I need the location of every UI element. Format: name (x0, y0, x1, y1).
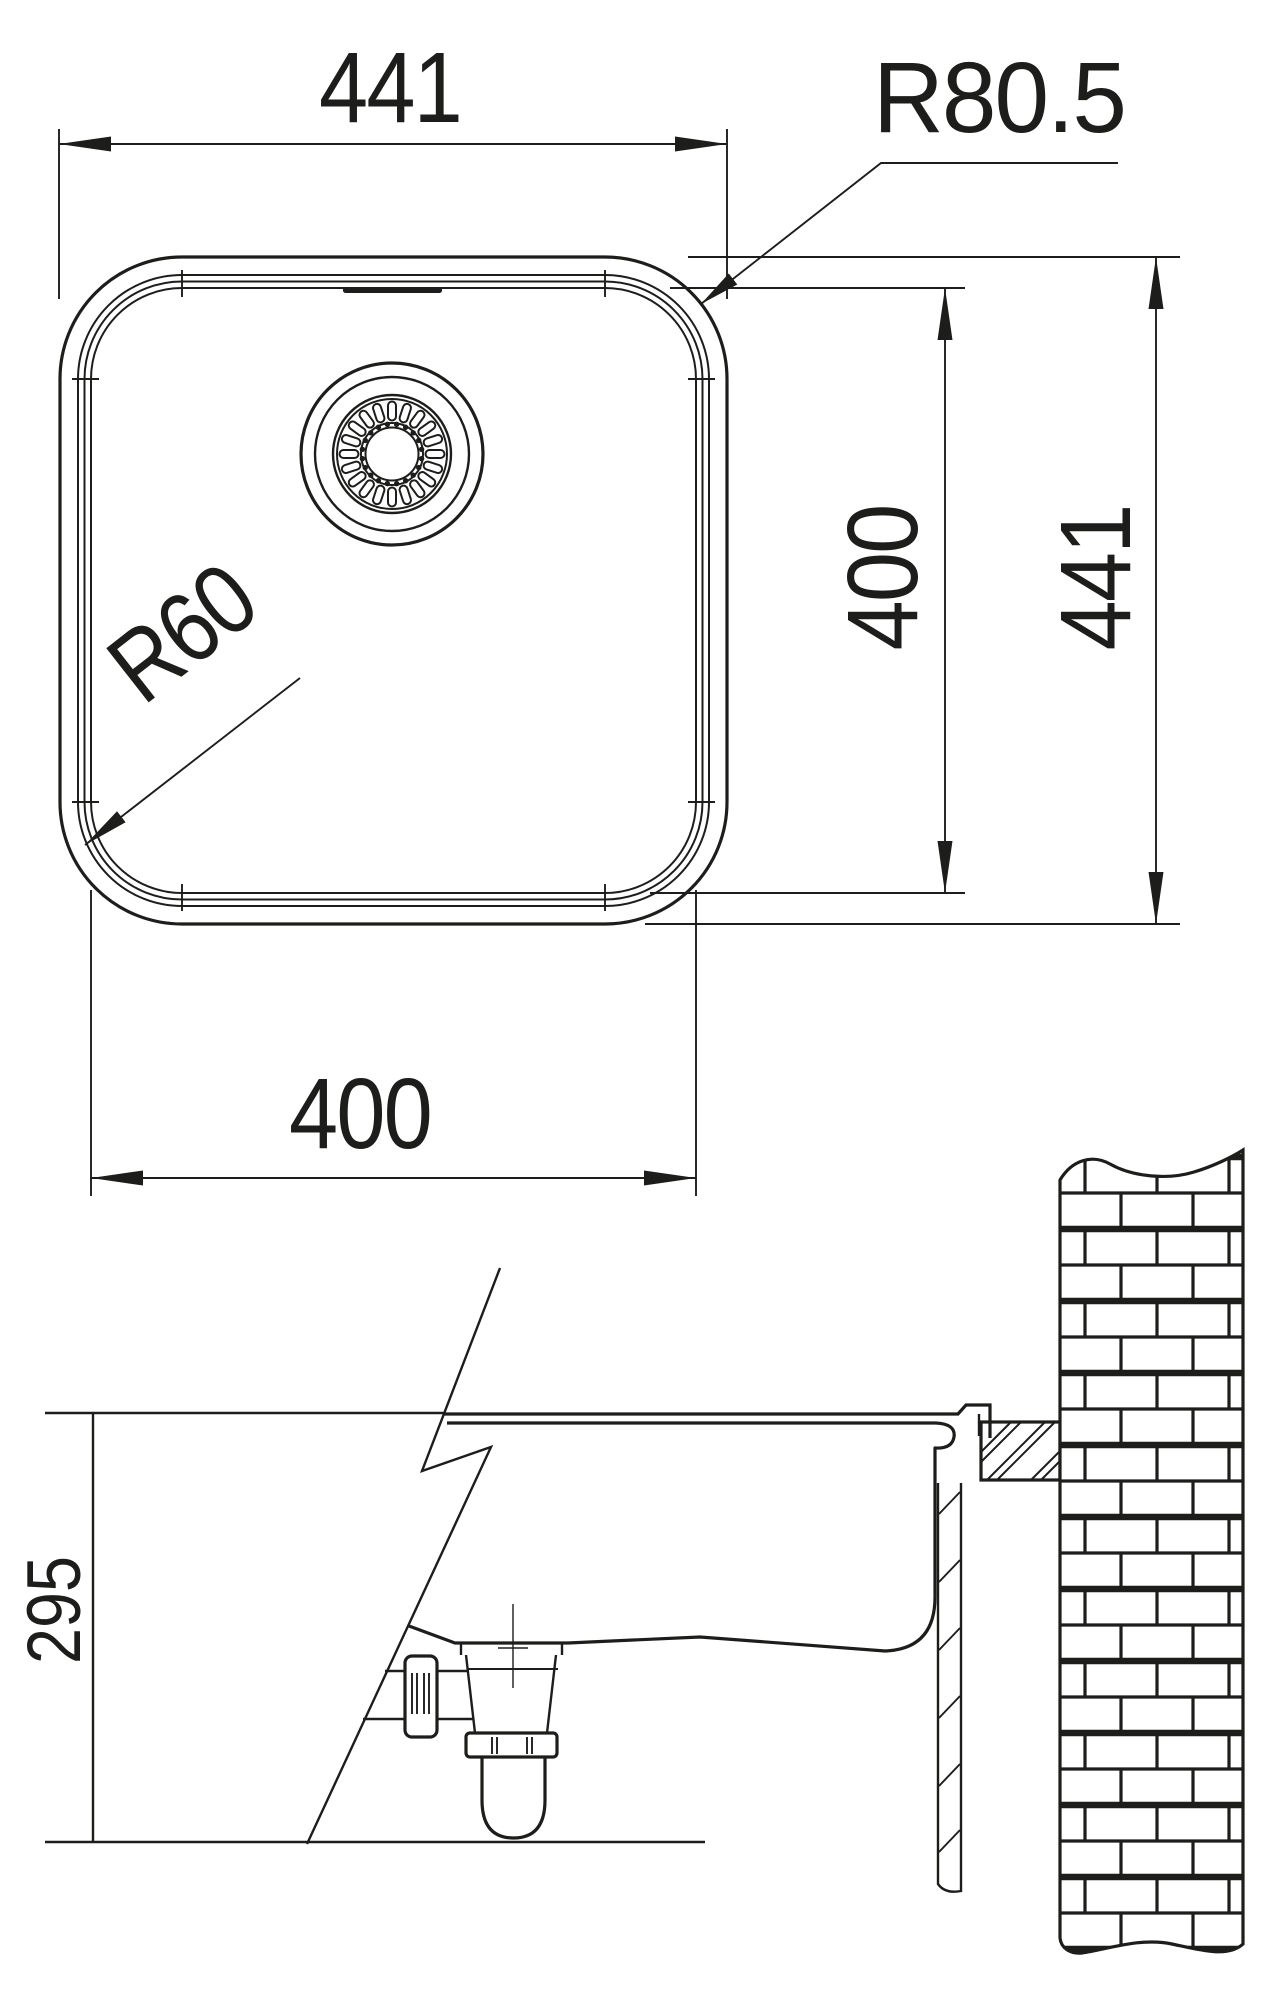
arrowhead-up (1149, 257, 1164, 309)
outer-corner-radius-value: R80.5 (873, 42, 1125, 154)
countertop-section (981, 1422, 1060, 1480)
section-view: 295 (12, 1150, 1243, 1953)
side-outlet-nut (405, 1656, 437, 1737)
dim-top-width-value: 441 (319, 32, 461, 144)
trap-cup (482, 1757, 545, 1838)
dim-inner-width: 400 (91, 890, 696, 1196)
leader-line-r80 (701, 163, 1118, 304)
arrowhead-down (938, 841, 953, 893)
rim-top-notch (343, 287, 442, 293)
outer-height-value: 441 (1040, 506, 1152, 651)
sink-section-profile (409, 1405, 990, 1651)
arrowhead-left (59, 137, 111, 152)
dim-top-extension-lines (59, 129, 727, 299)
arrowhead-r60 (85, 811, 126, 845)
trap-locknut (466, 1733, 557, 1757)
leader-outer-radius: R80.5 (701, 42, 1125, 304)
top-view: 441 R80.5 R60 400 441 (59, 32, 1180, 1196)
brick-wall (1060, 1150, 1243, 1953)
sink-technical-drawing: 441 R80.5 R60 400 441 (0, 0, 1281, 2000)
cabinet-panel-hatch (939, 1492, 960, 1852)
countertop-hatch (981, 1422, 1060, 1480)
leader-bowl-radius: R60 (85, 542, 300, 845)
drain-ring-3 (333, 395, 451, 513)
drain-outer-ring (301, 363, 483, 545)
cabinet-panel (938, 1483, 961, 1892)
dim-section-depth: 295 (12, 1413, 705, 1842)
locknut-slots (492, 1737, 532, 1754)
drain-ring-4 (337, 399, 447, 509)
brick-wall-shape (1060, 1150, 1243, 1953)
drain-center-ring-inner (366, 428, 419, 481)
drain-center-ring-outer (361, 423, 423, 485)
waste-trap (363, 1604, 562, 1838)
bowl-corner-radius-value: R60 (88, 542, 277, 724)
strainer-body (461, 1643, 562, 1733)
arrowhead-right (644, 1171, 696, 1186)
cabinet-panel-outline (938, 1483, 961, 1892)
drain-ring-2 (315, 377, 469, 531)
drawing-sheet: 441 R80.5 R60 400 441 (0, 0, 1281, 2000)
bowl-wall-and-bottom (409, 1423, 954, 1651)
drain-strainer (301, 363, 483, 545)
arrowhead-left (91, 1171, 143, 1186)
side-outlet-pipe (363, 1671, 474, 1719)
inner-width-value: 400 (289, 1058, 431, 1170)
drain-slot-dots (359, 421, 424, 486)
section-depth-value: 295 (12, 1556, 97, 1664)
arrowhead-right (675, 137, 727, 152)
drain-strainer-slots (340, 402, 445, 507)
inner-height-value: 400 (827, 506, 939, 651)
outlet-nut-ribs (412, 1673, 429, 1714)
arrowhead-down (1149, 872, 1164, 924)
arrowhead-up (938, 288, 953, 340)
